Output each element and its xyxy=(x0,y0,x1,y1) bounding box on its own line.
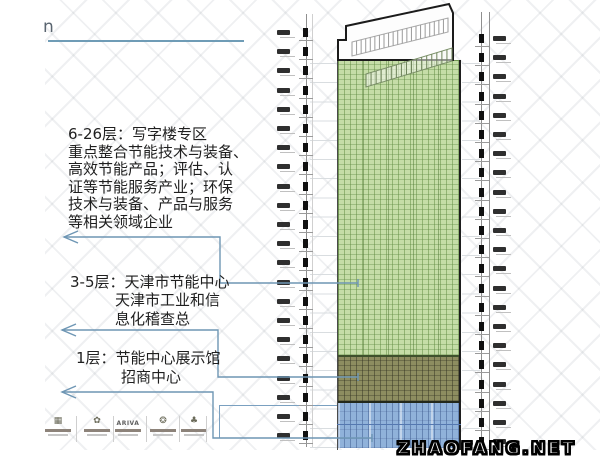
elevation-label-underline-right xyxy=(496,158,511,159)
dim-tick-left xyxy=(303,220,308,229)
header-rule xyxy=(48,40,244,42)
dim-tick-left xyxy=(303,393,308,402)
elevation-label-underline-left xyxy=(280,75,295,76)
dim-cross-right xyxy=(475,180,489,181)
elevation-label-underline-right xyxy=(496,62,511,63)
floor-extension-lines-right xyxy=(462,62,480,448)
elevation-label-right xyxy=(493,151,506,156)
annotation-energy-center: 3-5层：天津市节能中心 天津市工业和信 息化稽查总 xyxy=(70,273,300,328)
dim-tick-left xyxy=(303,47,308,56)
elevation-label-underline-left xyxy=(280,344,295,345)
dim-cross-right xyxy=(475,353,489,354)
elevation-label-left xyxy=(277,49,290,54)
dim-tick-right xyxy=(479,111,484,120)
elevation-label-underline-right xyxy=(496,389,511,390)
elevation-label-underline-right xyxy=(496,216,511,217)
elevation-label-left xyxy=(277,337,290,342)
elevation-label-underline-left xyxy=(280,56,295,57)
elevation-label-right xyxy=(493,36,506,41)
elevation-label-underline-left xyxy=(280,267,295,268)
elevation-label-right xyxy=(493,170,506,175)
dim-tick-right xyxy=(479,226,484,235)
dim-tick-right xyxy=(479,264,484,273)
elevation-label-right xyxy=(493,228,506,233)
elevation-label-left xyxy=(277,260,290,265)
elevation-label-right xyxy=(493,401,506,406)
logo-caption xyxy=(150,429,176,432)
dim-tick-left xyxy=(303,28,308,37)
elevation-label-right xyxy=(493,420,506,425)
dim-cross-left xyxy=(299,174,313,175)
dim-tick-right xyxy=(479,34,484,43)
dim-cross-left xyxy=(299,40,313,41)
elevation-label-right xyxy=(493,132,506,137)
dim-cross-right xyxy=(475,200,489,201)
logo-subcaption xyxy=(118,434,138,436)
dim-tick-right xyxy=(479,360,484,369)
dim-cross-left xyxy=(299,78,313,79)
elevation-label-underline-left xyxy=(280,37,295,38)
building-section-energy-center xyxy=(338,357,459,403)
elevation-label-underline-right xyxy=(496,331,511,332)
elevation-label-underline-right xyxy=(496,350,511,351)
highlight-box-top-edge xyxy=(219,405,338,406)
dim-cross-left xyxy=(299,194,313,195)
watermark-text: ZHAOFANG.NET xyxy=(397,439,576,459)
elevation-label-left xyxy=(277,433,290,438)
elevation-label-underline-right xyxy=(496,139,511,140)
elevation-label-underline-right xyxy=(496,120,511,121)
dim-cross-left xyxy=(299,309,313,310)
elevation-label-underline-right xyxy=(496,427,511,428)
building-icon: ▦ xyxy=(54,416,63,426)
dim-tick-left xyxy=(303,182,308,191)
elevation-label-left xyxy=(277,241,290,246)
logo-divider xyxy=(113,416,114,442)
elevation-label-underline-right xyxy=(496,235,511,236)
elevation-label-underline-right xyxy=(496,408,511,409)
flower-icon: ✿ xyxy=(93,416,101,426)
elevation-label-left xyxy=(277,30,290,35)
dim-tick-left xyxy=(303,335,308,344)
elevation-label-right xyxy=(493,190,506,195)
dim-tick-left xyxy=(303,143,308,152)
elevation-label-underline-right xyxy=(496,43,511,44)
dim-tick-right xyxy=(479,149,484,158)
logo-divider xyxy=(206,416,207,442)
dim-tick-left xyxy=(303,258,308,267)
elevation-label-underline-right xyxy=(496,293,511,294)
dim-cross-right xyxy=(475,334,489,335)
elevation-label-underline-left xyxy=(280,440,295,441)
annotation-office-zone: 6-26层：写字楼专区 重点整合节能技术与装备、 高效节能产品；评估、认 证等节… xyxy=(68,126,298,232)
dim-cross-right xyxy=(475,430,489,431)
elevation-label-right xyxy=(493,94,506,99)
dim-tick-left xyxy=(303,316,308,325)
building-section-office-zone xyxy=(338,60,459,357)
dim-tick-right xyxy=(479,245,484,254)
dim-tick-left xyxy=(303,431,308,440)
dim-cross-left xyxy=(299,328,313,329)
dim-cross-left xyxy=(299,405,313,406)
elevation-label-underline-right xyxy=(496,254,511,255)
elevation-label-left xyxy=(277,68,290,73)
dim-cross-right xyxy=(475,84,489,85)
dim-cross-left xyxy=(299,270,313,271)
dim-cross-left xyxy=(299,155,313,156)
left-margin xyxy=(0,0,45,450)
logo-subcaption xyxy=(153,434,173,436)
dim-cross-right xyxy=(475,104,489,105)
elevation-label-right xyxy=(493,382,506,387)
logo-subcaption xyxy=(184,434,204,436)
highlight-box-left-edge xyxy=(219,405,220,438)
dim-tick-right xyxy=(479,303,484,312)
dim-cross-left xyxy=(299,117,313,118)
floor-divider-line xyxy=(337,424,461,425)
elevation-label-right xyxy=(493,362,506,367)
gear-icon: ❂ xyxy=(159,416,167,426)
dim-cross-right xyxy=(475,411,489,412)
elevation-label-right xyxy=(493,247,506,252)
logo-subcaption xyxy=(48,434,68,436)
dim-tick-left xyxy=(303,297,308,306)
elevation-label-underline-left xyxy=(280,95,295,96)
dim-tick-right xyxy=(479,72,484,81)
elevation-label-right xyxy=(493,343,506,348)
dim-tick-left xyxy=(303,105,308,114)
elevation-label-right xyxy=(493,113,506,118)
logo-caption xyxy=(115,429,141,432)
elevation-label-underline-right xyxy=(496,177,511,178)
dim-tick-left xyxy=(303,239,308,248)
elevation-label-right xyxy=(493,74,506,79)
elevation-label-right xyxy=(493,266,506,271)
dim-cross-right xyxy=(475,161,489,162)
logo-caption xyxy=(45,429,71,432)
elevation-label-underline-right xyxy=(496,273,511,274)
dim-cross-right xyxy=(475,315,489,316)
logo-divider xyxy=(146,416,147,442)
dim-cross-left xyxy=(299,290,313,291)
elevation-label-underline-left xyxy=(280,402,295,403)
dim-tick-left xyxy=(303,278,308,287)
dim-line-right-outer xyxy=(489,12,490,447)
elevation-label-underline-right xyxy=(496,101,511,102)
elevation-label-underline-right xyxy=(496,197,511,198)
dim-tick-right xyxy=(479,130,484,139)
dim-cross-right xyxy=(475,219,489,220)
dim-cross-left xyxy=(299,424,313,425)
elevation-label-right xyxy=(493,209,506,214)
dim-cross-right xyxy=(475,65,489,66)
header-text-fragment: n xyxy=(43,17,54,37)
ariva-logo: ARIVA xyxy=(117,420,140,427)
dim-cross-left xyxy=(299,59,313,60)
dim-cross-left xyxy=(299,232,313,233)
building-elevation xyxy=(337,60,461,450)
dim-tick-right xyxy=(479,284,484,293)
elevation-label-underline-left xyxy=(280,421,295,422)
logo-caption xyxy=(181,429,207,432)
dim-cross-right xyxy=(475,392,489,393)
dim-cross-right xyxy=(475,372,489,373)
logo-subcaption xyxy=(87,434,107,436)
elevation-label-right xyxy=(493,286,506,291)
dim-tick-right xyxy=(479,207,484,216)
logo-divider xyxy=(76,416,77,442)
dim-cross-left xyxy=(299,443,313,444)
dim-cross-left xyxy=(299,213,313,214)
dim-cross-left xyxy=(299,98,313,99)
dim-tick-left xyxy=(303,124,308,133)
elevation-label-underline-right xyxy=(496,369,511,370)
dim-cross-right xyxy=(475,123,489,124)
dim-cross-right xyxy=(475,238,489,239)
dim-tick-right xyxy=(479,341,484,350)
dim-cross-right xyxy=(475,46,489,47)
dim-cross-left xyxy=(299,251,313,252)
floor-extension-lines-left xyxy=(310,62,337,448)
elevation-label-left xyxy=(277,414,290,419)
dim-tick-right xyxy=(479,322,484,331)
dim-cross-right xyxy=(475,142,489,143)
dim-tick-right xyxy=(479,53,484,62)
dim-tick-left xyxy=(303,201,308,210)
logo-caption xyxy=(84,429,110,432)
elevation-label-left xyxy=(277,395,290,400)
elevation-label-underline-right xyxy=(496,312,511,313)
dim-tick-left xyxy=(303,66,308,75)
elevation-label-underline-left xyxy=(280,114,295,115)
dim-cross-left xyxy=(299,136,313,137)
dim-tick-right xyxy=(479,188,484,197)
dim-tick-right xyxy=(479,418,484,427)
elevation-label-underline-right xyxy=(496,81,511,82)
elevation-label-left xyxy=(277,107,290,112)
dim-tick-left xyxy=(303,162,308,171)
elevation-label-left xyxy=(277,88,290,93)
dim-tick-right xyxy=(479,380,484,389)
elevation-label-right xyxy=(493,305,506,310)
dim-tick-left xyxy=(303,412,308,421)
elevation-label-right xyxy=(493,55,506,60)
dim-tick-right xyxy=(479,92,484,101)
logo-divider xyxy=(179,416,180,442)
dim-tick-right xyxy=(479,399,484,408)
dim-tick-right xyxy=(479,168,484,177)
dim-cross-right xyxy=(475,276,489,277)
annotation-exhibition-hall: 1层：节能中心展示馆 招商中心 xyxy=(76,349,306,387)
elevation-label-underline-left xyxy=(280,248,295,249)
dim-cross-right xyxy=(475,296,489,297)
elevation-label-right xyxy=(493,324,506,329)
dim-tick-left xyxy=(303,86,308,95)
tree-icon: ♣ xyxy=(190,416,198,426)
dim-cross-right xyxy=(475,257,489,258)
